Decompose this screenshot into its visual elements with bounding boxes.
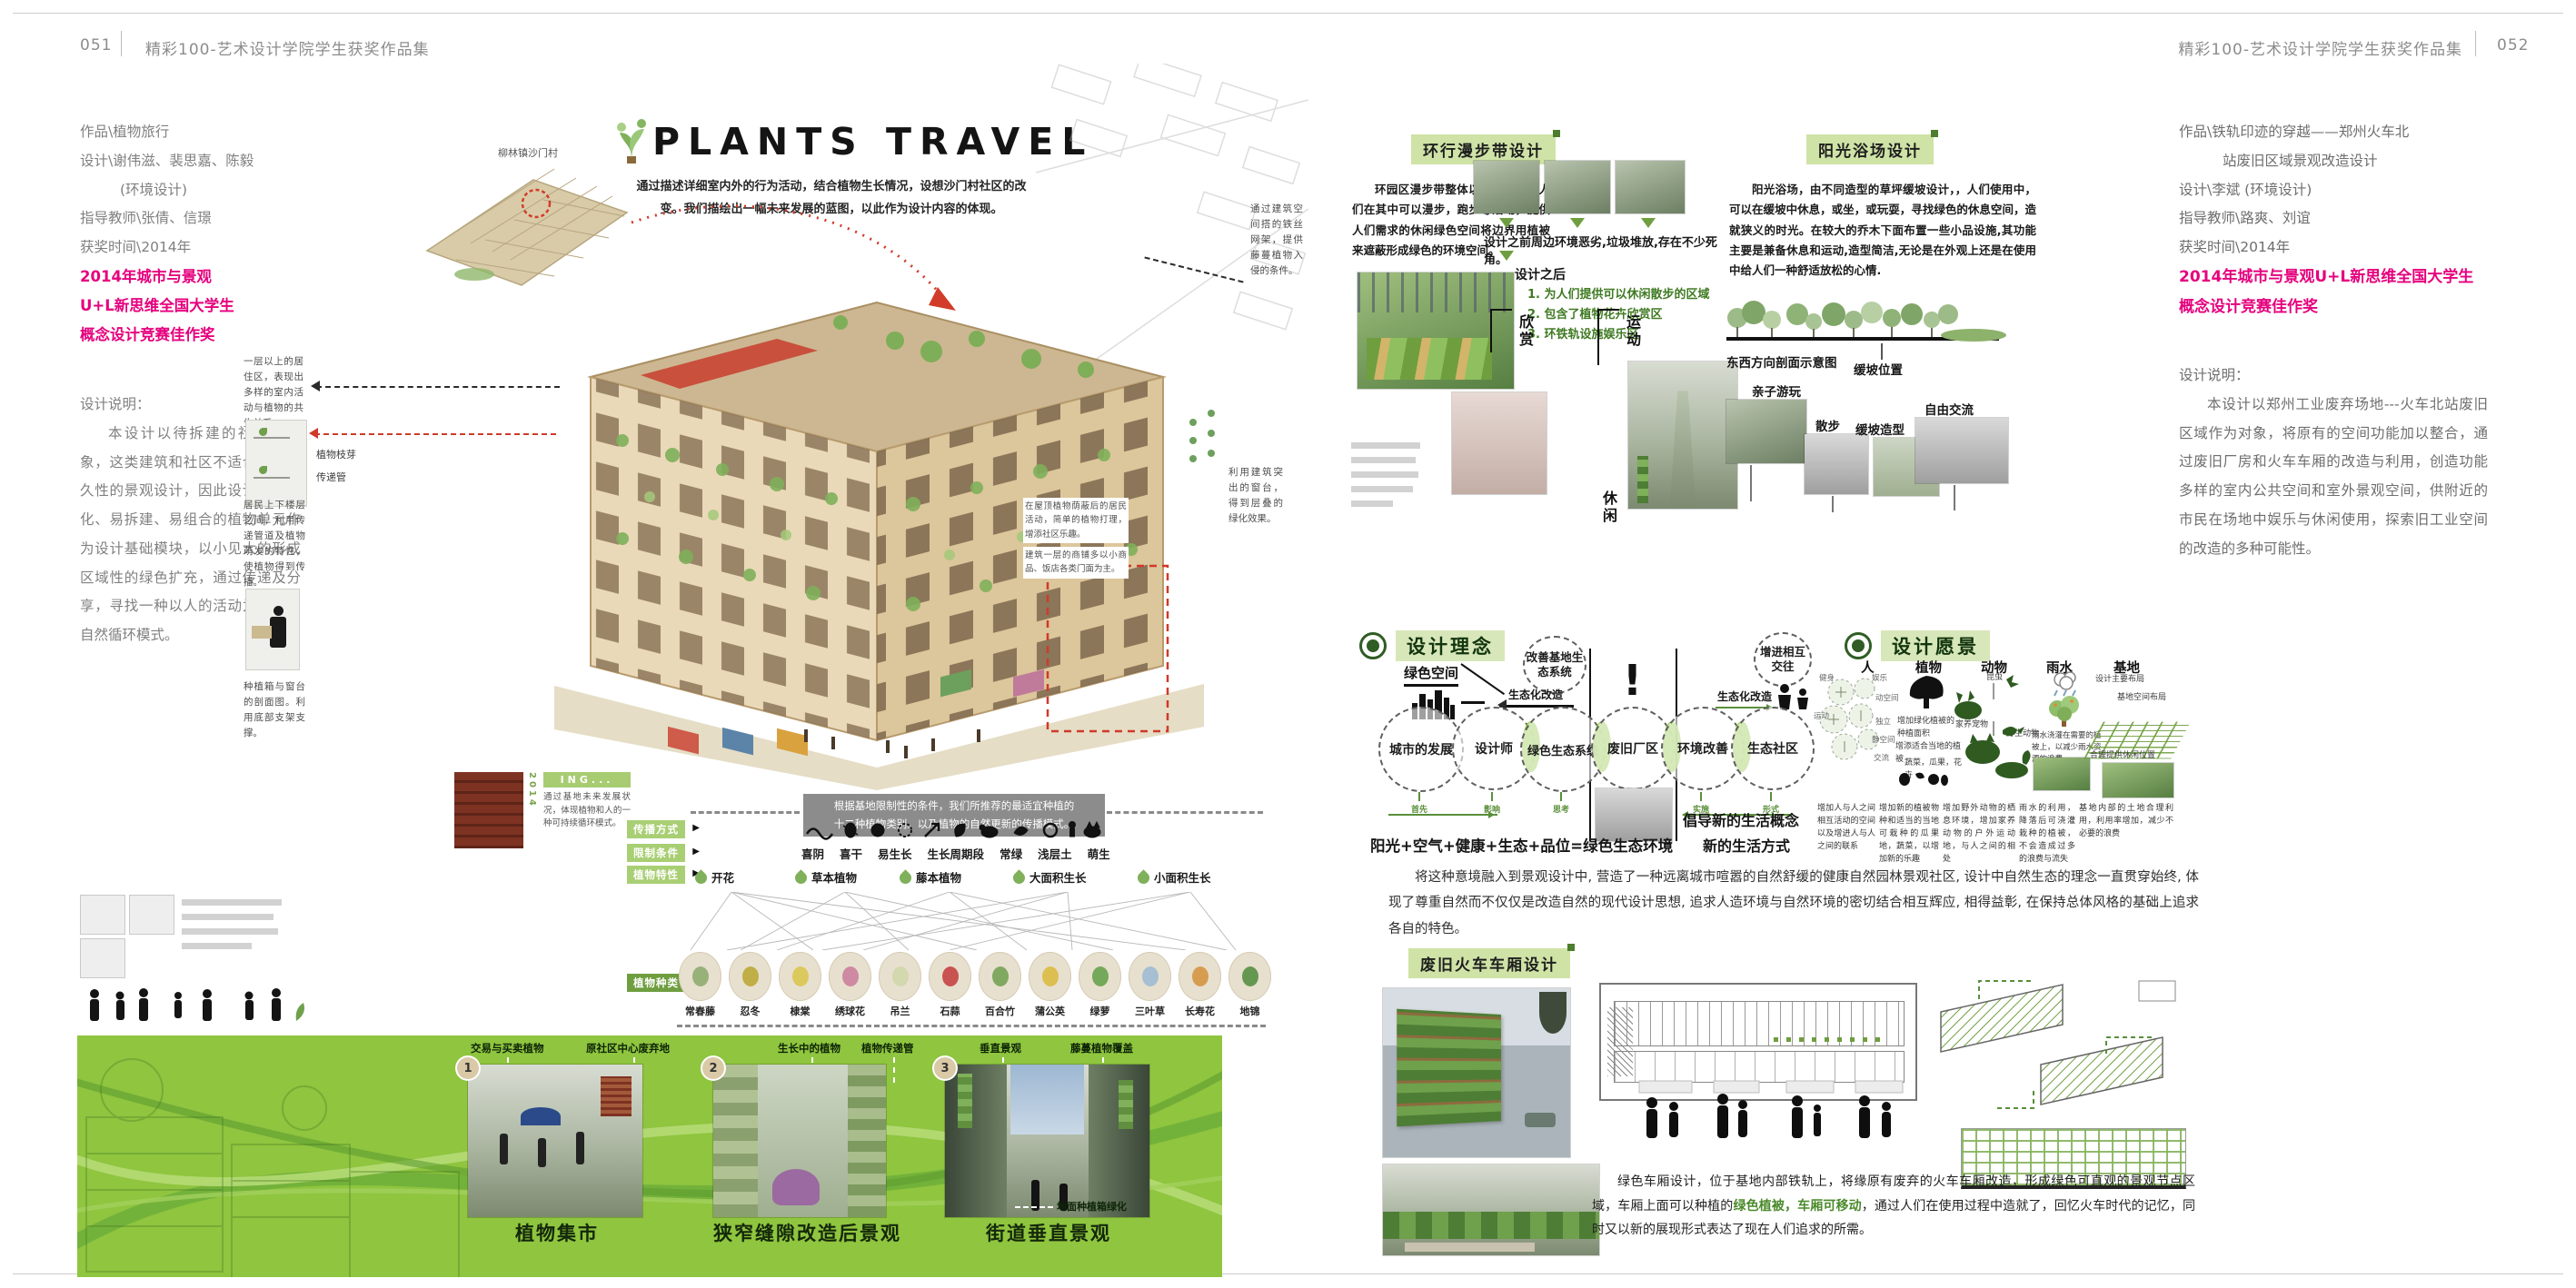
project-title: PLANTS TRAVEL (652, 120, 1093, 163)
panel-caption: 植物集市 (515, 1219, 599, 1246)
plant-photo (1029, 952, 1071, 1001)
vision-header-text: 设计愿景 (1881, 630, 1990, 661)
green-banner: 交易与买卖植物 原社区中心废弃地 生长中的植物 植物传递管 垂直景观 藤蔓植物覆… (77, 1035, 1222, 1277)
annotation-label: 生长中的植物 (778, 1041, 840, 1055)
mid-paragraph: 将这种意境融入到景观设计中, 营造了一种远离城市喧嚣的自然舒缓的健康自然园林景观… (1388, 865, 2199, 942)
label-chat: 自由交流 (1925, 400, 1974, 418)
vision-caption-animal: 增加野外动物的栖息环境，增加家养动物的户外运动地，与人之间的相处 (1943, 803, 2015, 867)
slope-position-label: 缓坡位置 (1854, 360, 1903, 378)
bubble-label: 动空间 (1875, 692, 1899, 703)
photo-before-2 (1545, 161, 1610, 213)
site-thumb (2103, 763, 2173, 798)
short-arrow (1461, 701, 1485, 704)
row-label-dispersal: 传播方式 (627, 820, 685, 838)
row-label-traits: 植物特性 (627, 866, 685, 884)
vision-caption-person: 增加人与人之间相互活动的空间以及增进人与人之间的联系 (1817, 803, 1875, 854)
photo-connector (1750, 465, 1752, 501)
work-title-l1: 作品\铁轨印迹的穿越——郑州火车北 (2179, 118, 2488, 147)
award-time: 获奖时间\2014年 (80, 233, 309, 263)
plant-photo (729, 952, 771, 1001)
photo-family (1726, 400, 1806, 463)
module-thumbnail (80, 938, 125, 978)
section-elevation (1726, 287, 2015, 345)
building-illustration (504, 232, 1245, 790)
statement-title: 设计说明： (2179, 362, 2488, 391)
condition: 萌生 (1088, 845, 1110, 862)
site-note-2: 基地空间布局 (2117, 692, 2166, 705)
tag-connector (1597, 309, 1619, 365)
species-row: 常春藤 忍冬 棣棠 绣球花 吊兰 石蒜 百合竹 蒲公英 绿萝 三叶草 长寿花 地… (677, 952, 1273, 1018)
plant-photo (1179, 952, 1221, 1001)
species-item: 吊兰 (877, 952, 923, 1018)
plant-photo (979, 952, 1021, 1001)
project-info-right: 作品\铁轨印迹的穿越——郑州火车北 站废旧区域景观改造设计 设计\李斌 (环境设… (2179, 118, 2488, 322)
site-label: 柳林镇沙门村 (498, 145, 558, 160)
plant-photo (1079, 952, 1121, 1001)
section-header-sun: 阳光浴场设计 (1806, 134, 1934, 164)
leaf-icon (1135, 869, 1151, 886)
ing-block: ING... 通过基地未来发展状况，体现植物和人的一种可持续循环模式。 (543, 772, 631, 831)
label-slope: 缓坡造型 (1855, 420, 1905, 438)
project-info-left: 作品\植物旅行 设计\谢伟滋、裴思嘉、陈毅 (环境设计) 指导教师\张倩、信璟 … (80, 118, 309, 350)
award-line: U+L新思维全国大学生 (80, 292, 309, 321)
condition: 生长周期段 (928, 845, 985, 862)
produce-icons (1897, 770, 1948, 787)
award-line: 概念设计竞赛佳作奖 (80, 321, 309, 350)
tree-shape (1539, 992, 1566, 1034)
trait-item: 草本植物 (795, 868, 857, 886)
species-item: 地锦 (1227, 952, 1273, 1018)
species-item: 常春藤 (677, 952, 723, 1018)
species-item: 绣球花 (827, 952, 873, 1018)
statement-body: 本设计以郑州工业废弃场地---火车北站废旧区域作为对象，将原有的空间功能加以整合… (2179, 391, 2488, 564)
green-space-label: 绿色空间 (1404, 663, 1458, 687)
callout-upper-right: 通过建筑空间搭的铁丝网架，提供藤蔓植物入侵的条件。 (1250, 202, 1303, 279)
ing-tag: ING... (543, 772, 631, 788)
tag-connector (1490, 309, 1512, 352)
animal-silhouettes (1950, 674, 2037, 783)
section-header-carriage: 废旧火车车厢设计 (1408, 948, 1570, 978)
concept-circle-6: 生态社区 (1731, 707, 1815, 790)
plant-photo (929, 952, 971, 1001)
photo-before-3 (1616, 161, 1685, 213)
species-underline (677, 1025, 1266, 1027)
tag-rest: 休闲 (1597, 490, 1619, 525)
species-item: 百合竹 (977, 952, 1023, 1018)
bullseye-icon (1845, 632, 1872, 659)
callout-lower-left: 种植箱与窗台的剖面图。利用底部支架支撑。 (244, 679, 305, 741)
butterfly-icon (2006, 675, 2019, 688)
condition: 常绿 (1000, 845, 1022, 862)
matrix-dash-left (691, 811, 800, 814)
rain-thumb (2034, 758, 2090, 790)
vision-caption-rain: 雨水的利用，降落后可浇灌栽种的植被，不会造成过多的浪费与流失 (2019, 803, 2075, 867)
tag-sport: 运动 (1621, 314, 1643, 349)
cloud-rain-tree-icon (2043, 670, 2086, 728)
flow-arrow-right (1388, 814, 1497, 816)
leaf-icon (1010, 869, 1027, 886)
work-title: 作品\植物旅行 (80, 118, 309, 147)
annotation-label: 交易与买卖植物 (471, 1041, 544, 1055)
species-item: 忍冬 (727, 952, 773, 1018)
brick-wall-photo (454, 772, 523, 848)
plant-logo-icon (614, 118, 649, 165)
panel-caption: 街道垂直景观 (986, 1219, 1111, 1246)
bubble-label: 娱乐 (1872, 672, 1887, 683)
advocate-line1: 倡导新的生活概念 (1683, 808, 1799, 830)
step-label: 思考 (1531, 792, 1591, 815)
label-walk: 散步 (1815, 416, 1840, 434)
species-item: 石蒜 (927, 952, 973, 1018)
micro-text-placeholder (1351, 442, 1420, 515)
carriage-caption: 绿色车厢设计，位于基地内部铁轨上，将缘原有废弃的火车车厢改造，形成绿色可直观的景… (1592, 1170, 2195, 1243)
header-divider-right (2475, 31, 2476, 56)
book-title-right: 精彩100-艺术设计学院学生获奖作品集 (2167, 36, 2462, 59)
condition: 易生长 (878, 845, 912, 862)
top-rule (13, 13, 2563, 14)
bullseye-icon (1359, 632, 1387, 659)
photo-walk (1805, 434, 1868, 494)
umbrella-icon (521, 1107, 561, 1125)
designers: 设计\谢伟滋、裴思嘉、陈毅 (80, 147, 309, 176)
designers: 设计\李斌 (环境设计) (2179, 176, 2488, 205)
photo-connector (1954, 485, 1955, 510)
page-number-left: 051 (80, 36, 112, 54)
award-line: 2014年城市与景观 (80, 263, 309, 292)
panel-number: 1 (457, 1057, 479, 1079)
connector-line (1460, 663, 1505, 695)
concept-header-text: 设计理念 (1396, 630, 1505, 661)
conditions-row: 喜阴 喜干 易生长 生长周期段 常绿 浅层土 萌生 (801, 845, 1110, 862)
activity-silhouettes (1636, 1079, 1919, 1163)
plant-photo (1129, 952, 1171, 1001)
work-title-l2: 站废旧区域景观改造设计 (2179, 147, 2488, 176)
photo-soft (1452, 392, 1547, 494)
improve-circle: 改善基地生态系统 (1523, 636, 1586, 694)
leaf-icon (692, 869, 709, 886)
leaf-icon (792, 869, 809, 886)
advisors: 指导教师\张倩、信璟 (80, 204, 309, 233)
leader-line (893, 1057, 895, 1083)
slope-connector (1881, 343, 1883, 360)
photo-before-1 (1474, 161, 1539, 213)
advocate-line2: 新的生活方式 (1703, 834, 1790, 856)
panel-caption: 狭窄缝隙改造后景观 (713, 1219, 901, 1246)
photo-street-vertical (945, 1065, 1149, 1217)
bubble-label: 静空间 (1872, 734, 1895, 745)
module-thumbnail (80, 895, 125, 935)
callout-base-b: 建筑一层的商铺多以小商品、饭店各类门面为主。 (1023, 547, 1129, 579)
formula: 阳光+空气+健康+生态+品位=绿色生态环境 (1370, 834, 1673, 856)
condition: 喜阴 (801, 845, 824, 862)
micro-text-placeholder (182, 899, 282, 957)
plant-photo (1228, 952, 1271, 1001)
connection-mesh (677, 892, 1249, 950)
bubble-label: 健身 (1819, 672, 1835, 683)
header-divider-left (121, 31, 122, 56)
panel-number: 3 (934, 1057, 956, 1079)
book-title-left: 精彩100-艺术设计学院学生获奖作品集 (145, 36, 430, 59)
concept-circle-1: 城市的发展 (1378, 707, 1464, 792)
site-note-1: 设计主要布局 (2095, 674, 2144, 687)
sprout-icon (259, 428, 267, 436)
species-item: 三叶草 (1127, 952, 1173, 1018)
species-item: 长寿花 (1177, 952, 1223, 1018)
flowers (772, 1169, 820, 1205)
photo-plant-market (468, 1065, 642, 1217)
car-shape (1525, 1113, 1556, 1127)
annotation-label: 植物传递管 (861, 1041, 914, 1055)
label-pipe: 传递管 (316, 470, 346, 484)
species-item: 绿萝 (1077, 952, 1123, 1018)
callout-arrow-red (314, 433, 556, 435)
trait-item: 藤本植物 (900, 868, 961, 886)
vision-caption-plant: 增加新的植被物种和适当的当地可栽种的瓜果地，蔬菜，以增加新的乐趣 (1879, 803, 1939, 867)
department: (环境设计) (80, 176, 309, 205)
arrowhead-red-icon (303, 428, 318, 439)
vision-caption-site: 基地内部的土地合理利用，利用率增加，减少不必要的浪费 (2079, 803, 2173, 841)
callout-arrow-black (316, 386, 560, 388)
species-item: 棣棠 (777, 952, 823, 1018)
carriage-axon-drawing (1925, 972, 2186, 1125)
award-line: 2014年城市与景观U+L新思维全国大学生 (2179, 263, 2488, 292)
trait-item: 大面积生长 (1013, 868, 1087, 886)
plant-photo (679, 952, 721, 1001)
tag-view: 欣赏 (1514, 314, 1536, 349)
callout-base-a: 在屋顶植物荫蔽后的居民活动，简单的植物打理，增添社区乐趣。 (1023, 498, 1129, 543)
callout-mid-left: 居民上下楼层之间，利用传递管道及植物萌发的特性，使植物得到传播。 (244, 498, 305, 590)
annotation-label: 原社区中心废弃地 (586, 1041, 670, 1055)
section-elevation-label: 东西方向剖面示意图 (1726, 352, 1837, 371)
bubble-label: 独立 (1875, 716, 1891, 727)
photo-connector (1832, 496, 1834, 512)
plant-photo (779, 952, 821, 1001)
promote-circle: 增进相互交往 (1754, 632, 1812, 687)
exclamation-icon: ! (1623, 656, 1642, 705)
green-wall (1397, 1009, 1502, 1126)
panel-number: 2 (702, 1057, 724, 1079)
annotation-label: 垂直景观 (980, 1041, 1021, 1055)
bubble-label: 运动 (1814, 710, 1829, 721)
plant-photo (879, 952, 921, 1001)
arrowhead-black-icon (305, 381, 320, 391)
concept-header: 设计理念 (1359, 630, 1505, 661)
after-item-1: 1. 为人们提供可以休闲散步的区域 (1527, 285, 1710, 305)
ing-text: 通过基地未来发展状况，体现植物和人的一种可持续循环模式。 (543, 791, 631, 831)
eco-label-a: 生态化改造 (1508, 687, 1563, 702)
ing-year: 2014 (527, 772, 537, 808)
module-diagram (245, 420, 307, 507)
people-silhouettes (80, 986, 307, 1026)
species-item: 蒲公英 (1027, 952, 1073, 1018)
annotation-label: 地面种植箱绿化 (1057, 1199, 1127, 1214)
matrix-banner-line1: 根据基地限制性的条件，我们所推荐的最适宜种植的 (803, 798, 1105, 816)
condition: 喜干 (840, 845, 862, 862)
leader-line (1015, 1206, 1053, 1208)
trait-item: 小面积生长 (1138, 868, 1211, 886)
sun-paragraph: 阳光浴场，由不同造型的草坪缓坡设计，，人们使用中，可以在缓坡中休息，或坐，或玩耍… (1729, 180, 2036, 281)
design-statement-right: 设计说明： 本设计以郑州工业废弃场地---火车北站废旧区域作为对象，将原有的空间… (2179, 362, 2488, 563)
bubble-label: 交流 (1874, 752, 1889, 763)
step-label: 首先 (1389, 792, 1449, 815)
down-arrow-icon (1499, 251, 1514, 268)
before-caption: 设计之前周边环境恶劣,垃圾堆放,存在不少死角。 (1484, 233, 1720, 267)
tree-icon (1906, 672, 1946, 710)
caption-green: 绿色植被，车厢可移动 (1733, 1199, 1861, 1214)
section-diagram (245, 589, 300, 670)
render-carriage-street (1383, 1164, 1599, 1255)
render-green-carriage (1383, 988, 1570, 1157)
award-line: 概念设计竞赛佳作奖 (2179, 292, 2488, 322)
matrix-dash-right (1107, 811, 1263, 814)
dispersal-icons (803, 820, 1103, 840)
condition: 浅层土 (1038, 845, 1072, 862)
award-time: 获奖时间\2014年 (2179, 233, 2488, 263)
trait-item: 开花 (695, 868, 734, 886)
plant-photo (829, 952, 871, 1001)
green-dots (1774, 1037, 1883, 1042)
row-label-conditions: 限制条件 (627, 844, 685, 862)
module-thumbnail (129, 895, 174, 935)
page-number-right: 052 (2497, 36, 2529, 54)
site-note-3: 合理提供休闲位置 (2090, 750, 2155, 763)
eco-label-b: 生态化改造 (1717, 689, 1772, 704)
callout-mid-right: 利用建筑突出的窗台，得到层叠的绿化效果。 (1228, 465, 1283, 527)
render-walk-street (1628, 362, 1737, 509)
label-family: 亲子游玩 (1752, 381, 1801, 400)
photo-chat (1915, 418, 2008, 483)
label-branch: 植物枝芽 (316, 447, 356, 461)
sprout-icon (259, 466, 267, 474)
leaf-icon (897, 869, 913, 886)
after-title: 设计之后 (1515, 265, 1566, 283)
advisors: 指导教师\路爽、刘谊 (2179, 204, 2488, 233)
annotation-label: 藤蔓植物覆盖 (1070, 1041, 1133, 1055)
book-spread: 051 精彩100-艺术设计学院学生获奖作品集 精彩100-艺术设计学院学生获奖… (0, 0, 2576, 1288)
photo-narrow-gap (713, 1065, 886, 1217)
vision-header: 设计愿景 (1845, 630, 1990, 661)
